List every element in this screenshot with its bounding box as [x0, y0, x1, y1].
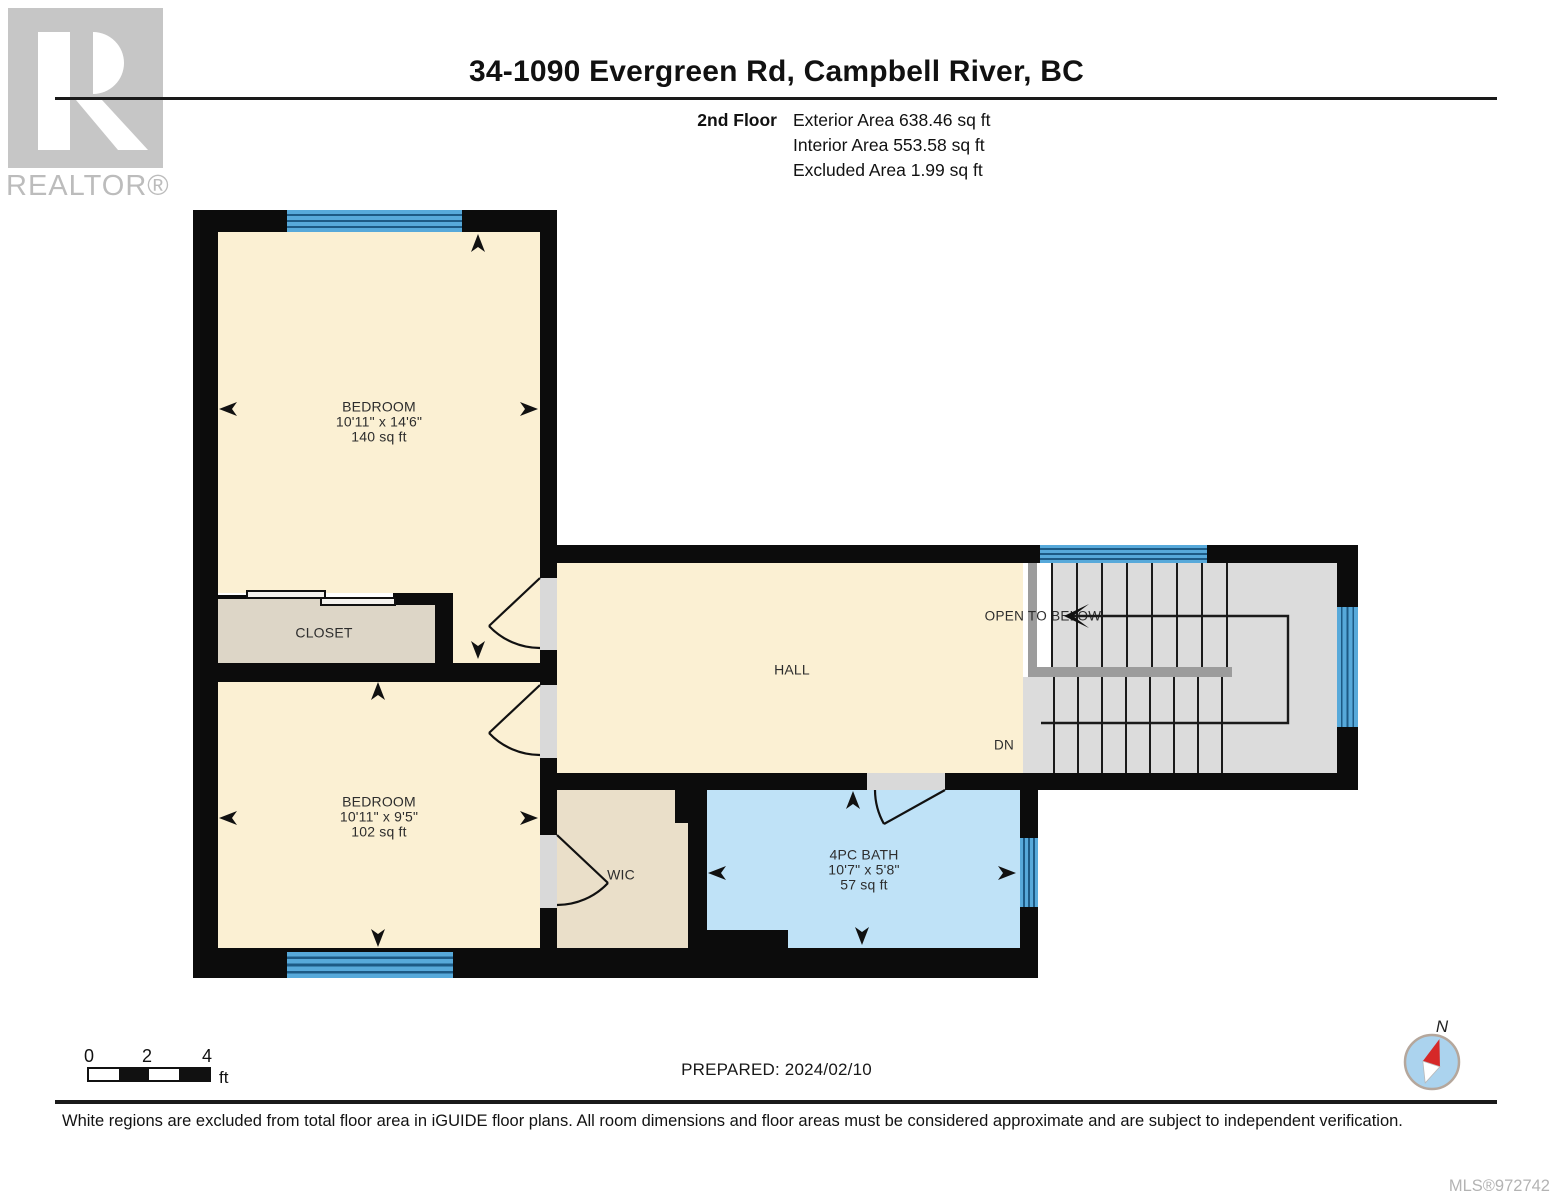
wall — [557, 545, 1040, 563]
wall — [193, 663, 557, 682]
wall — [193, 210, 218, 978]
floor-label: 2nd Floor — [557, 110, 777, 131]
wall — [1207, 545, 1358, 563]
disclaimer-text: White regions are excluded from total fl… — [62, 1112, 1502, 1131]
wall — [945, 773, 1358, 790]
wall — [540, 210, 557, 578]
room-name: HALL — [774, 663, 810, 678]
label-wic: WIC — [607, 868, 635, 883]
room-name: CLOSET — [295, 626, 352, 641]
room-dims: 10'11" x 9'5" — [340, 810, 418, 825]
wall — [1020, 907, 1038, 978]
compass-icon: N — [1400, 1010, 1466, 1096]
sliding-door-panel — [320, 597, 396, 606]
wall — [435, 605, 453, 663]
label-bedroom2: BEDROOM 10'11" x 9'5" 102 sq ft — [340, 795, 418, 840]
wall — [393, 593, 453, 605]
label-closet: CLOSET — [295, 626, 352, 641]
room-dims: 10'11" x 14'6" — [336, 415, 422, 430]
room-area: 140 sq ft — [336, 430, 422, 445]
window — [287, 210, 462, 232]
room-fill-alcove — [453, 593, 540, 663]
window — [1337, 607, 1358, 727]
wall — [675, 790, 707, 823]
room-area: 57 sq ft — [828, 878, 899, 893]
door-bedroom2 — [540, 685, 557, 758]
label-bath: 4PC BATH 10'7" x 5'8" 57 sq ft — [828, 848, 899, 893]
window — [1020, 838, 1038, 907]
wall — [1337, 545, 1358, 607]
room-name: BEDROOM — [340, 795, 418, 810]
prepared-date: PREPARED: 2024/02/10 — [0, 1060, 1553, 1080]
room-name: 4PC BATH — [828, 848, 899, 863]
wall — [1020, 790, 1038, 838]
realtor-logo-label: REALTOR® — [6, 170, 196, 203]
sliding-door-panel — [246, 590, 326, 599]
page-title: 34-1090 Evergreen Rd, Campbell River, BC — [0, 55, 1553, 89]
stair-railing-horizontal — [1028, 667, 1232, 677]
compass-north-label: N — [1436, 1017, 1449, 1036]
door-bedroom1 — [540, 578, 557, 650]
label-open-to-below: OPEN TO BELOW — [985, 609, 1102, 624]
footer-divider — [55, 1100, 1497, 1104]
room-name: BEDROOM — [336, 400, 422, 415]
floorplan-page: REALTOR® 34-1090 Evergreen Rd, Campbell … — [0, 0, 1553, 1200]
wall — [557, 773, 867, 790]
label-hall: HALL — [774, 663, 810, 678]
excluded-area: Excluded Area 1.99 sq ft — [793, 160, 983, 181]
mls-number: MLS®972742 — [1440, 1177, 1550, 1196]
label-down: DN — [994, 738, 1014, 753]
interior-area: Interior Area 553.58 sq ft — [793, 135, 985, 156]
exterior-area: Exterior Area 638.46 sq ft — [793, 110, 990, 131]
door-bath — [867, 773, 945, 790]
wall — [692, 930, 788, 978]
room-dims: 10'7" x 5'8" — [828, 863, 899, 878]
window — [287, 952, 453, 978]
label-bedroom1: BEDROOM 10'11" x 14'6" 140 sq ft — [336, 400, 422, 445]
room-name: WIC — [607, 868, 635, 883]
stairs-lower-region — [1023, 677, 1052, 773]
wall — [540, 758, 557, 835]
door-wic — [540, 835, 557, 908]
room-area: 102 sq ft — [340, 825, 418, 840]
header-divider — [55, 97, 1497, 100]
window — [1040, 545, 1207, 563]
